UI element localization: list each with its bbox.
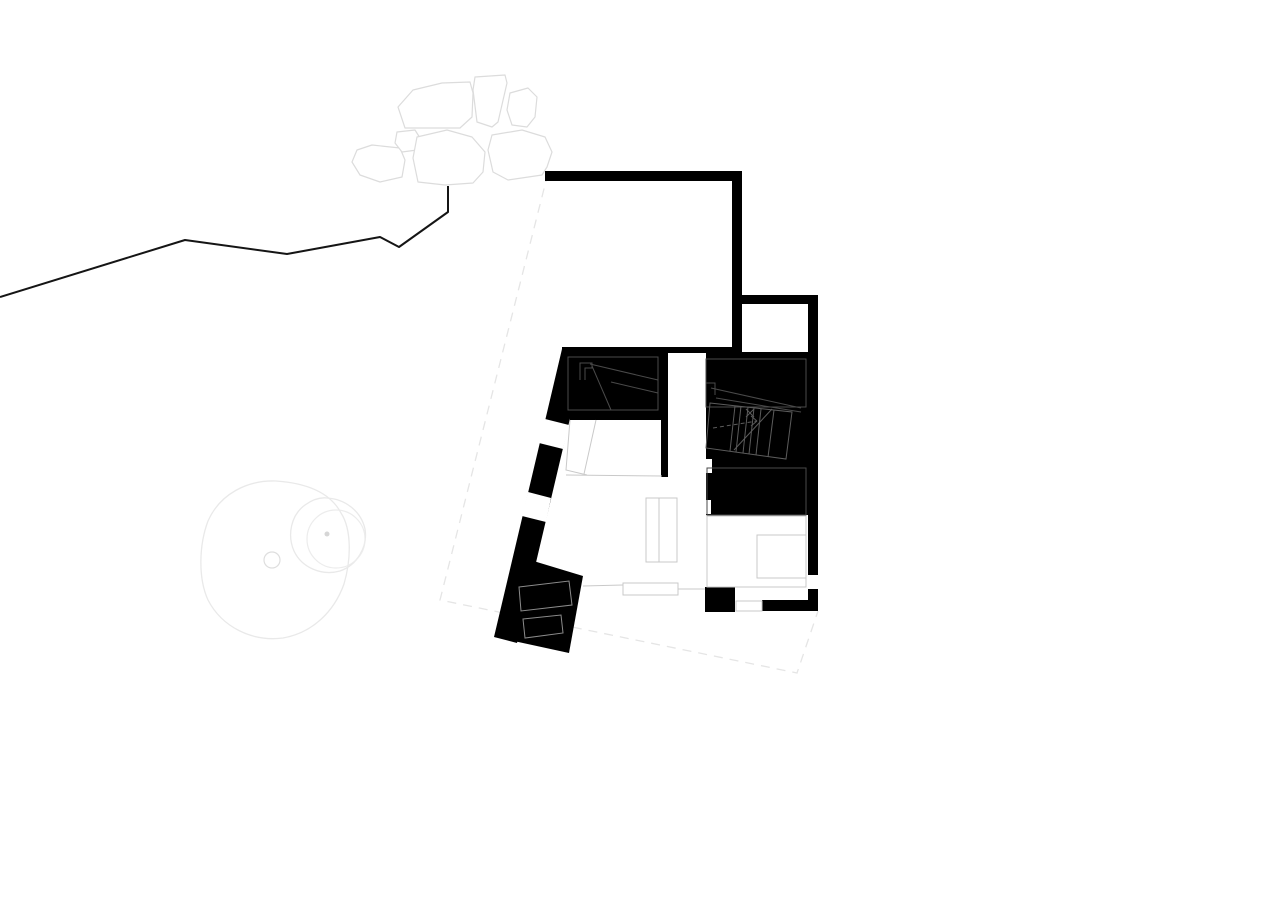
tree-canopy-overlap xyxy=(307,510,365,568)
layer-rocks xyxy=(352,75,552,185)
wall-roof-right xyxy=(732,171,742,352)
bench-line-west xyxy=(583,585,623,586)
tree-center-dot xyxy=(325,532,330,537)
layer-terrain xyxy=(0,186,448,297)
room-south-poche xyxy=(705,587,735,612)
southwest-corner-block xyxy=(495,556,583,653)
wall-step-top xyxy=(742,295,818,304)
wall-roof-top xyxy=(545,171,742,181)
bench-outline xyxy=(623,583,678,595)
floor-plan-svg xyxy=(0,0,1280,905)
rock-right xyxy=(488,130,552,180)
terrace-line-1 xyxy=(584,420,596,474)
rock-top-right xyxy=(507,88,537,127)
wall-south xyxy=(762,600,818,611)
layer-vegetation xyxy=(201,481,366,639)
terrain-contour-line xyxy=(0,186,448,297)
bed-square-outline xyxy=(757,535,806,578)
door-south-outline xyxy=(736,601,762,611)
rock-center-large xyxy=(413,130,485,185)
block-northeast-poche xyxy=(706,352,818,515)
terrace-line-2 xyxy=(566,420,587,475)
rock-far-left xyxy=(352,145,405,182)
site-plan-viewport xyxy=(0,0,1280,905)
door-corridor-north xyxy=(704,459,712,473)
rock-left-large xyxy=(398,82,473,128)
rock-top-tall xyxy=(473,75,507,127)
tree-trunk xyxy=(264,552,280,568)
terrace-line-3 xyxy=(566,475,662,476)
kitchen-island-outline xyxy=(646,498,677,562)
wall-corridor-west xyxy=(661,420,668,477)
